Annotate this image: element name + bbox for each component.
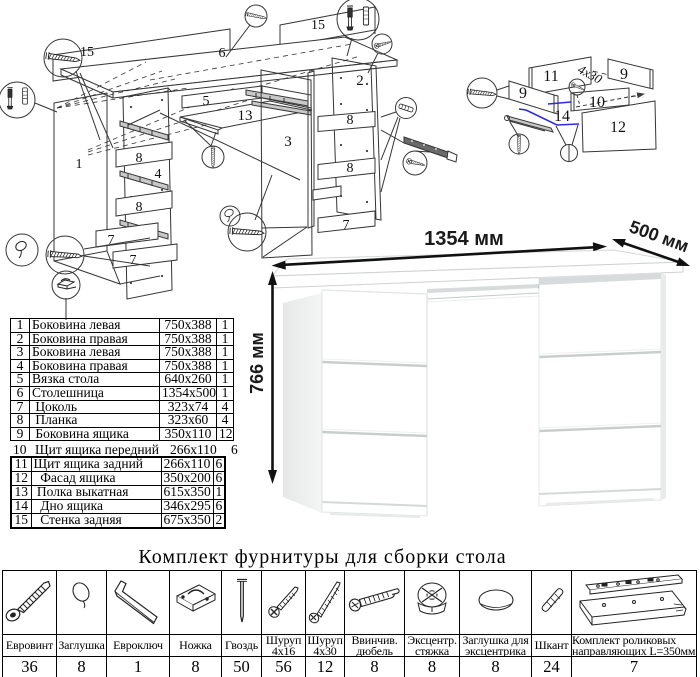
svg-text:10: 10 [589,94,605,111]
svg-text:12: 12 [610,119,626,136]
svg-text:8: 8 [347,113,354,128]
svg-text:766 мм: 766 мм [247,332,267,394]
svg-text:15: 15 [80,45,94,60]
svg-text:8: 8 [347,161,354,176]
svg-text:5: 5 [203,94,210,109]
svg-text:7: 7 [108,233,115,248]
svg-text:13: 13 [238,108,253,124]
svg-text:11: 11 [543,68,558,85]
svg-text:1: 1 [76,157,83,172]
svg-text:15: 15 [311,18,325,33]
svg-text:7: 7 [343,218,350,233]
svg-text:6: 6 [219,46,226,61]
svg-text:4: 4 [155,167,162,182]
svg-text:8: 8 [136,200,143,215]
svg-text:9: 9 [519,85,527,102]
svg-text:9: 9 [620,66,628,83]
svg-text:2: 2 [356,73,364,89]
svg-text:500 мм: 500 мм [627,216,692,256]
svg-text:3: 3 [284,134,292,150]
svg-text:8: 8 [136,151,143,166]
svg-text:1354 мм: 1354 мм [424,228,504,250]
svg-text:14: 14 [554,108,570,125]
svg-text:7: 7 [130,253,137,268]
